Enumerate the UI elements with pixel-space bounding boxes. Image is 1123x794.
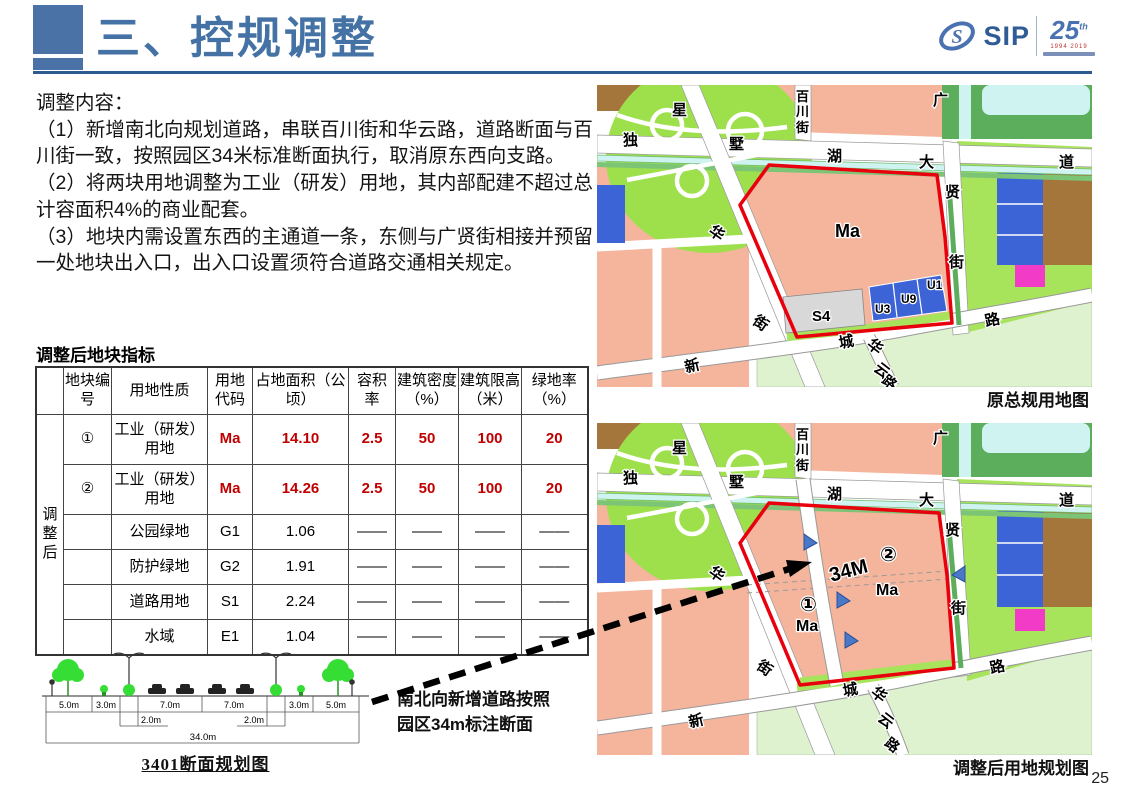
content-item-1: （1）新增南北向规划道路，串联百川街和华云路，道路断面与百川街一致，按照园区34… xyxy=(36,117,596,170)
adjusted-plan-map: 星 独 墅 百 川 街 湖 大 广 道 贤 街 华 街 34M ② Ma ① M… xyxy=(597,423,1092,755)
cell-code: G1 xyxy=(208,515,253,550)
road-label: 川 xyxy=(795,104,809,119)
dim-lane-left: 7.0m xyxy=(160,700,180,710)
cell-code: Ma xyxy=(208,415,253,465)
cell-nature: 道路用地 xyxy=(112,585,208,620)
content-heading: 调整内容： xyxy=(36,90,596,117)
cell-green: —— xyxy=(522,585,588,620)
cell-id xyxy=(64,585,112,620)
header-green-rate: 绿地率（%） xyxy=(522,367,588,415)
parcel-number-1: ① xyxy=(800,594,817,616)
road-label: 川 xyxy=(795,442,809,457)
cell-id: ① xyxy=(64,415,112,465)
road-label: 广 xyxy=(933,429,948,447)
page-title: 三、控规调整 xyxy=(96,2,378,66)
adjustment-content: 调整内容： （1）新增南北向规划道路，串联百川街和华云路，道路断面与百川街一致，… xyxy=(36,90,596,277)
parcel-number-2: ② xyxy=(880,544,897,566)
road-label: 道 xyxy=(1059,153,1074,171)
dim-median-left: 2.0m xyxy=(141,715,161,725)
cell-nature: 防护绿地 xyxy=(112,550,208,585)
cell-height: —— xyxy=(459,585,522,620)
title-decoration-bar xyxy=(33,58,83,70)
road-label: 道 xyxy=(1059,491,1074,509)
road-label: 街 xyxy=(948,253,964,271)
road-label: 城 xyxy=(841,680,859,700)
dim-sidewalk-right: 5.0m xyxy=(326,700,346,710)
car-icon xyxy=(148,684,254,694)
parcel-label-u3: U3 xyxy=(875,302,891,316)
header-land-nature: 用地性质 xyxy=(112,367,208,415)
cell-green: —— xyxy=(522,620,588,656)
header-far: 容积率 xyxy=(349,367,396,415)
dim-lane-right: 7.0m xyxy=(224,700,244,710)
cell-nature: 工业（研发）用地 xyxy=(112,465,208,515)
cell-green: —— xyxy=(522,550,588,585)
pedestrian-icon xyxy=(50,680,354,696)
title-decoration-square xyxy=(33,5,83,54)
cell-density: —— xyxy=(396,515,459,550)
cell-height: —— xyxy=(459,620,522,656)
road-label: 大 xyxy=(919,491,934,509)
dim-total-width: 34.0m xyxy=(190,732,216,743)
slide: 三、控规调整 S SIP 25th 1994 2019 调整内容： （1）新增南… xyxy=(0,0,1123,794)
cell-far: 2.5 xyxy=(349,465,396,515)
cell-far: —— xyxy=(349,585,396,620)
cell-height: —— xyxy=(459,550,522,585)
anniversary-years: 1994 2019 xyxy=(1050,44,1087,50)
indicator-table: 地块编号 用地性质 用地代码 占地面积（公顷） 容积率 建筑密度（%） 建筑限高… xyxy=(35,366,589,656)
adjusted-map-caption: 调整后用地规划图 xyxy=(597,754,1089,779)
road-label: 百 xyxy=(796,427,809,442)
cell-nature: 工业（研发）用地 xyxy=(112,415,208,465)
cell-id xyxy=(64,515,112,550)
road-label: 贤 xyxy=(945,522,960,539)
cross-section-caption: 3401断面规划图 xyxy=(38,750,373,775)
table-header-row: 地块编号 用地性质 用地代码 占地面积（公顷） 容积率 建筑密度（%） 建筑限高… xyxy=(36,367,588,415)
header-area: 占地面积（公顷） xyxy=(253,367,349,415)
cell-far: —— xyxy=(349,515,396,550)
cell-id: ② xyxy=(64,465,112,515)
original-map-caption: 原总规用地图 xyxy=(597,386,1089,411)
parcel-label-ma: Ma xyxy=(835,221,861,241)
road-label: 广 xyxy=(933,91,948,109)
sip-logo-text: SIP xyxy=(983,21,1030,52)
cell-green: 20 xyxy=(522,465,588,515)
parcel-label-ma: Ma xyxy=(796,618,818,635)
logo-divider xyxy=(1036,16,1037,56)
cell-id xyxy=(64,550,112,585)
group-label: 调整后 xyxy=(36,415,64,656)
cell-green: 20 xyxy=(522,415,588,465)
table-row: ② 工业（研发）用地 Ma 14.26 2.5 50 100 20 xyxy=(36,465,588,515)
road-label: 墅 xyxy=(729,136,744,153)
road-label: 大 xyxy=(919,153,934,171)
road-label: 独 xyxy=(623,131,638,149)
cell-area: 1.06 xyxy=(253,515,349,550)
road-label: 贤 xyxy=(945,184,960,201)
page-number: 25 xyxy=(1091,770,1109,788)
table-row: 调整后 ① 工业（研发）用地 Ma 14.10 2.5 50 100 20 xyxy=(36,415,588,465)
road-label: 湖 xyxy=(827,486,842,503)
cell-height: 100 xyxy=(459,465,522,515)
cell-green: —— xyxy=(522,515,588,550)
cell-area: 2.24 xyxy=(253,585,349,620)
sip-s-icon: S xyxy=(937,16,977,56)
cell-code: Ma xyxy=(208,465,253,515)
cell-height: —— xyxy=(459,515,522,550)
road-cross-section-diagram: 5.0m 3.0m 7.0m 7.0m 3.0m 5.0m 2.0m 2.0m … xyxy=(38,646,373,750)
cell-density: 50 xyxy=(396,465,459,515)
road-label: 街 xyxy=(795,120,809,135)
parcel-label-s4: S4 xyxy=(812,308,831,325)
sip-logo: S SIP 25th 1994 2019 xyxy=(937,16,1095,56)
road-label: 星 xyxy=(672,102,687,119)
content-item-3: （3）地块内需设置东西的主通道一条，东侧与广贤街相接并预留一处地块出入口，出入口… xyxy=(36,224,596,277)
tree-icon xyxy=(52,659,84,696)
anniversary-25-logo: 25th 1994 2019 xyxy=(1043,17,1095,56)
cell-nature: 公园绿地 xyxy=(112,515,208,550)
road-label: 街 xyxy=(950,599,966,617)
parcel-label-u1: U1 xyxy=(927,278,943,292)
new-road-annotation: 南北向新增道路按照 园区34m标注断面 xyxy=(397,688,550,737)
road-label: 墅 xyxy=(729,474,744,491)
content-item-2: （2）将两块用地调整为工业（研发）用地，其内部配建不超过总计容面积4%的商业配套… xyxy=(36,170,596,223)
road-label: 城 xyxy=(837,332,855,352)
tree-icon xyxy=(322,659,354,696)
table-row: 道路用地 S1 2.24 —— —— —— —— xyxy=(36,585,588,620)
table-row: 公园绿地 G1 1.06 —— —— —— —— xyxy=(36,515,588,550)
street-lamp-icon xyxy=(114,653,291,696)
table-title: 调整后地块指标 xyxy=(36,341,155,366)
header-group xyxy=(36,367,64,415)
cell-code: S1 xyxy=(208,585,253,620)
cell-density: —— xyxy=(396,550,459,585)
cell-area: 1.91 xyxy=(253,550,349,585)
cell-height: 100 xyxy=(459,415,522,465)
road-label: 街 xyxy=(795,458,809,473)
cell-area: 14.26 xyxy=(253,465,349,515)
cell-far: 2.5 xyxy=(349,415,396,465)
cell-area: 14.10 xyxy=(253,415,349,465)
dim-median-right: 2.0m xyxy=(244,715,264,725)
road-label: 百 xyxy=(796,89,809,104)
cell-density: —— xyxy=(396,585,459,620)
header-density: 建筑密度（%） xyxy=(396,367,459,415)
header-land-code: 用地代码 xyxy=(208,367,253,415)
cell-far: —— xyxy=(349,550,396,585)
cell-density: 50 xyxy=(396,415,459,465)
header-plot-id: 地块编号 xyxy=(64,367,112,415)
road-label: 独 xyxy=(623,469,638,487)
table-row: 防护绿地 G2 1.91 —— —— —— —— xyxy=(36,550,588,585)
road-label: 星 xyxy=(672,440,687,457)
header-height-limit: 建筑限高（米） xyxy=(459,367,522,415)
parcel-label-u9: U9 xyxy=(901,292,917,306)
dim-sidewalk-left: 5.0m xyxy=(59,700,79,710)
dim-verge-left: 3.0m xyxy=(96,700,116,710)
cell-density: —— xyxy=(396,620,459,656)
header-divider xyxy=(33,71,1092,74)
road-label: 湖 xyxy=(827,148,842,165)
original-plan-map: 星 独 墅 百 川 街 湖 大 广 道 贤 街 华 街 Ma S4 U3 U9 … xyxy=(597,85,1092,387)
median-shrub-icon xyxy=(123,684,282,696)
dim-verge-right: 3.0m xyxy=(289,700,309,710)
cell-code: G2 xyxy=(208,550,253,585)
anniversary-small-text xyxy=(1043,52,1095,56)
svg-text:S: S xyxy=(952,26,963,48)
parcel-label-ma: Ma xyxy=(876,582,898,599)
